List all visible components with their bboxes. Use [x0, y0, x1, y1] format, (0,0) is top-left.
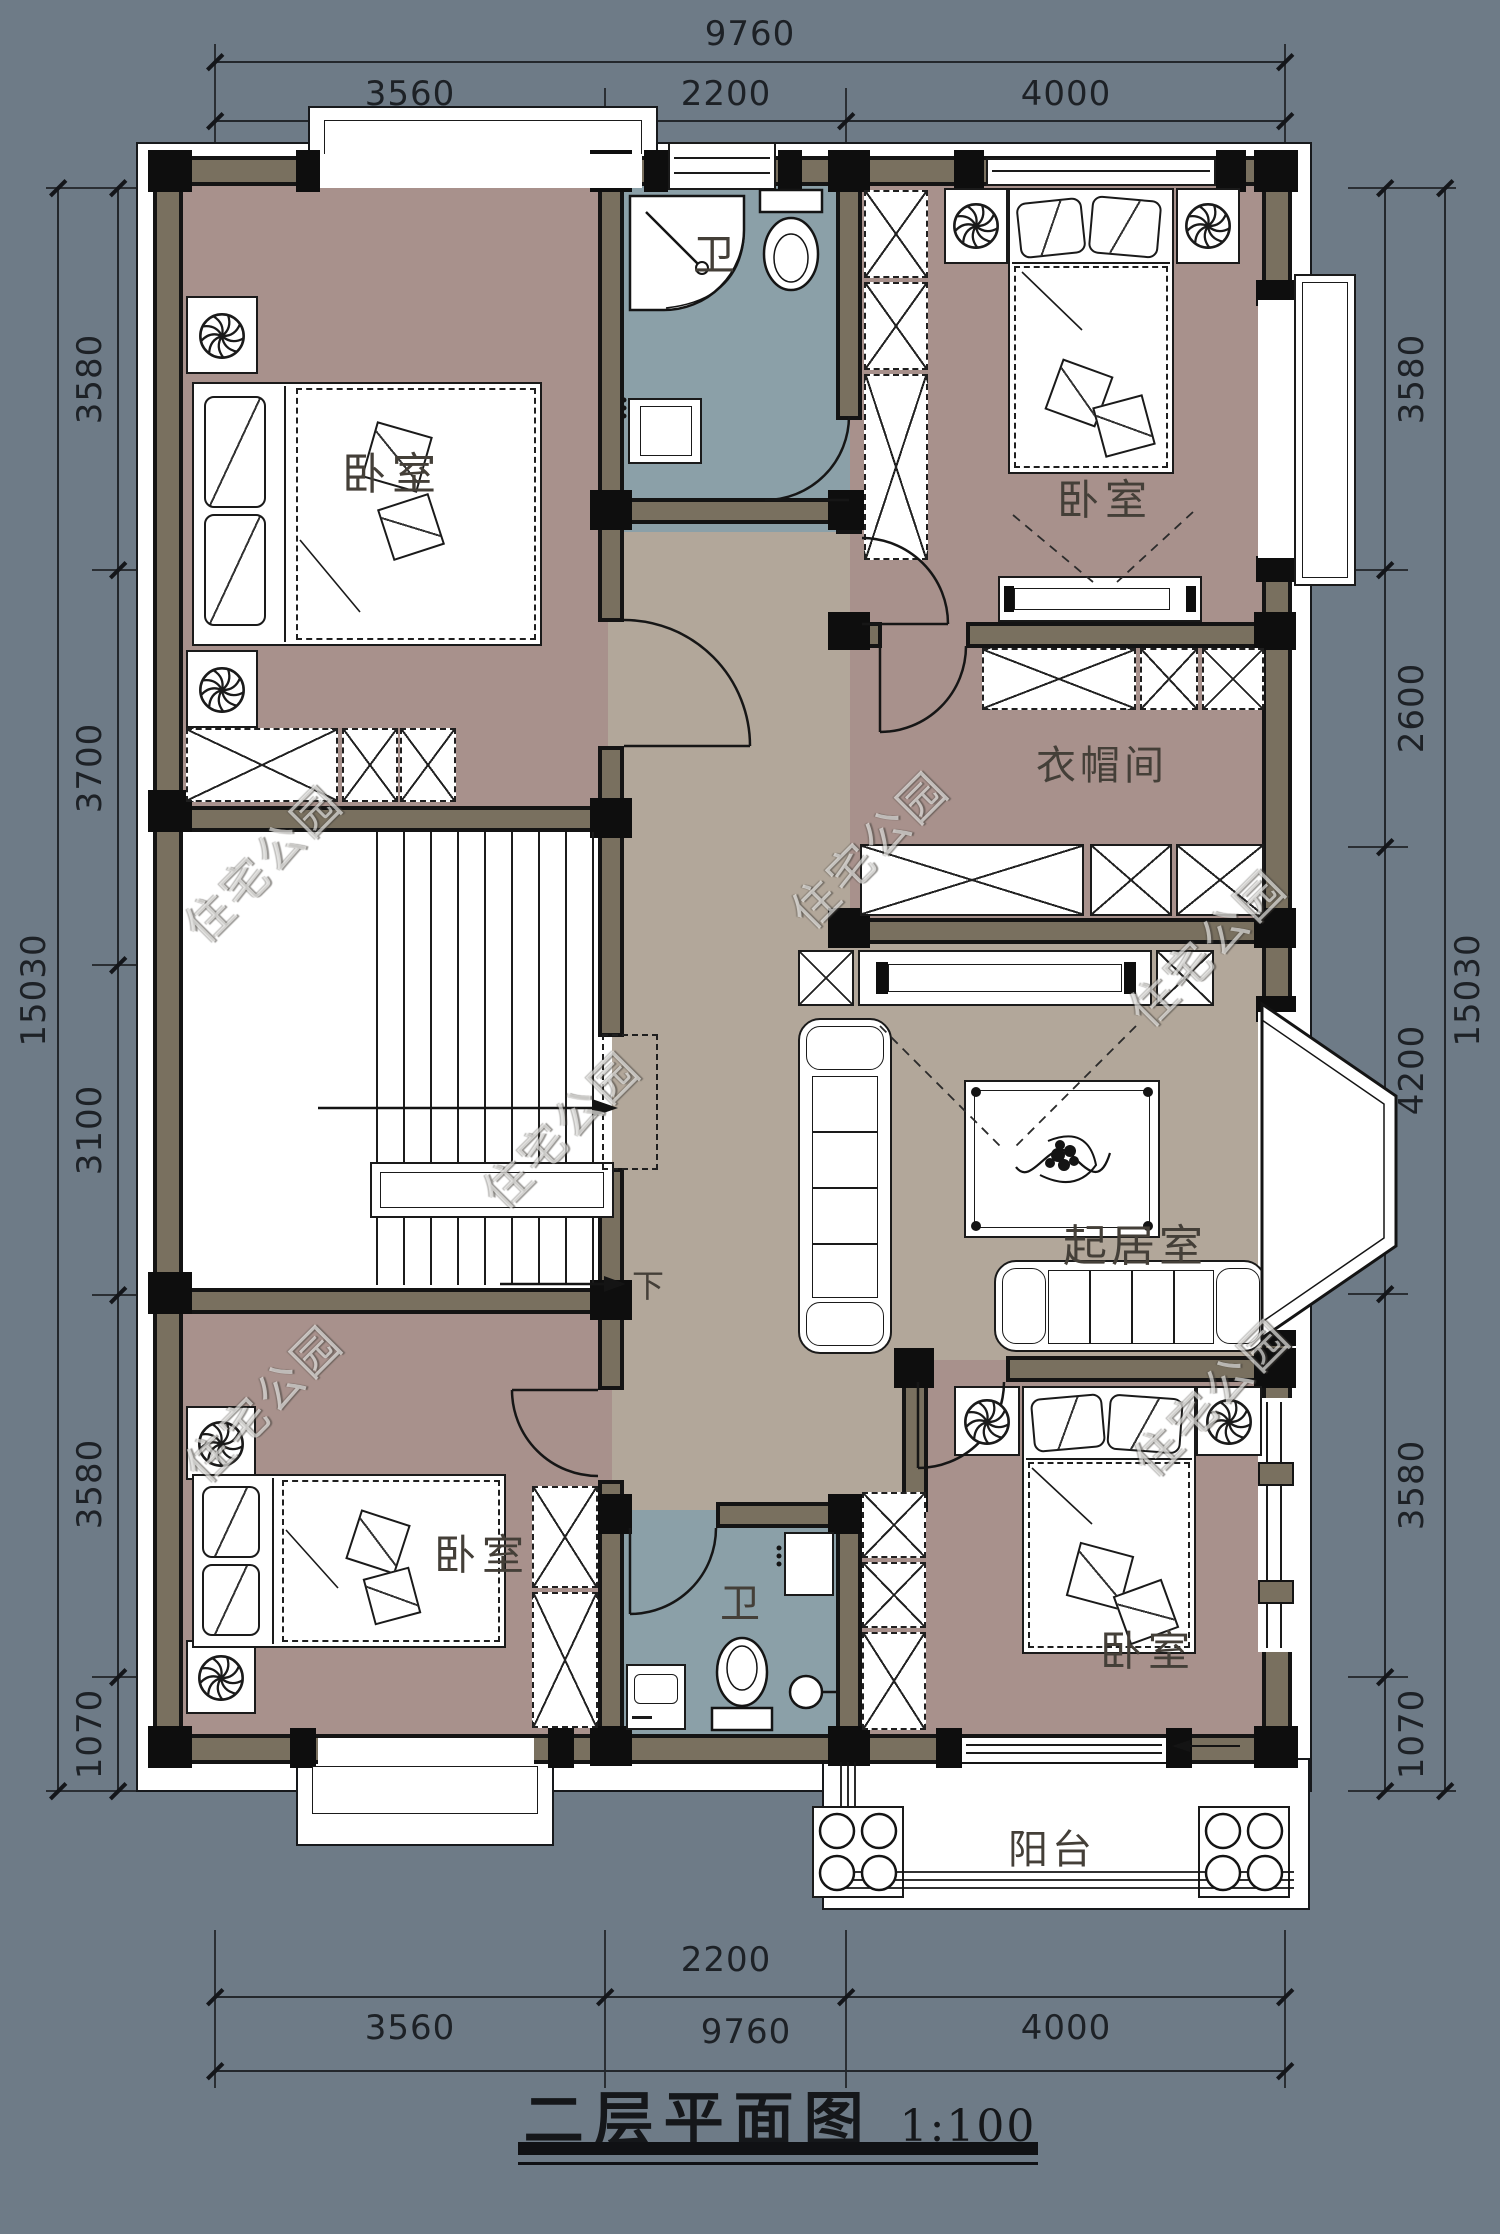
room-label-bedroom-bl: 卧室	[434, 1522, 530, 1583]
toilet-bowl	[717, 1638, 767, 1706]
door-arcs	[512, 416, 1004, 1614]
room-label-balcony: 阳台	[1008, 1817, 1096, 1875]
rug-ornament	[1016, 1136, 1110, 1182]
room-label-bedroom-tl: 卧室	[342, 438, 442, 502]
room-label-bedroom-br: 卧室	[1100, 1618, 1196, 1679]
door-bedroom-bl	[512, 1390, 598, 1476]
toilet-tank	[712, 1708, 772, 1730]
toilet-tank	[760, 190, 822, 212]
door-bath-top	[765, 416, 849, 500]
toilet-bowl	[764, 218, 818, 290]
wash-basin	[790, 1676, 822, 1708]
cabinet-dots	[622, 398, 782, 1567]
room-label-bedroom-tr: 卧室	[1057, 467, 1153, 528]
balcony-door-arrow-head	[1172, 1740, 1190, 1752]
floor-plan-sheet: 9760 3560 2200 4000 15030 3580 3700 3100…	[0, 0, 1500, 2234]
plan-linework	[0, 0, 1500, 2234]
ceiling-lamp-icon	[1186, 204, 1229, 248]
room-label-closet: 衣帽间	[1036, 733, 1168, 791]
door-bedroom-tr	[862, 538, 948, 624]
ceiling-lamp-icon	[965, 1400, 1008, 1444]
title-underline-thick	[518, 2142, 1038, 2155]
title-underline-thin	[518, 2162, 1038, 2165]
room-label-bath-top: 卫	[693, 222, 735, 283]
door-closet	[880, 646, 966, 732]
room-label-bath-bottom: 卫	[720, 1571, 760, 1629]
ceiling-lamp-icon	[199, 1656, 242, 1700]
ceiling-lamp-icon	[200, 668, 243, 712]
hex-bay-window	[1262, 1004, 1396, 1338]
stair-exit-arrow-head	[604, 1276, 626, 1292]
door-bedroom-tl	[624, 620, 750, 746]
room-label-living: 起居室	[1063, 1210, 1207, 1274]
door-bath-bottom	[630, 1528, 716, 1614]
ceiling-lamp-icon	[954, 204, 997, 248]
ceiling-lamp-icon	[200, 314, 243, 358]
